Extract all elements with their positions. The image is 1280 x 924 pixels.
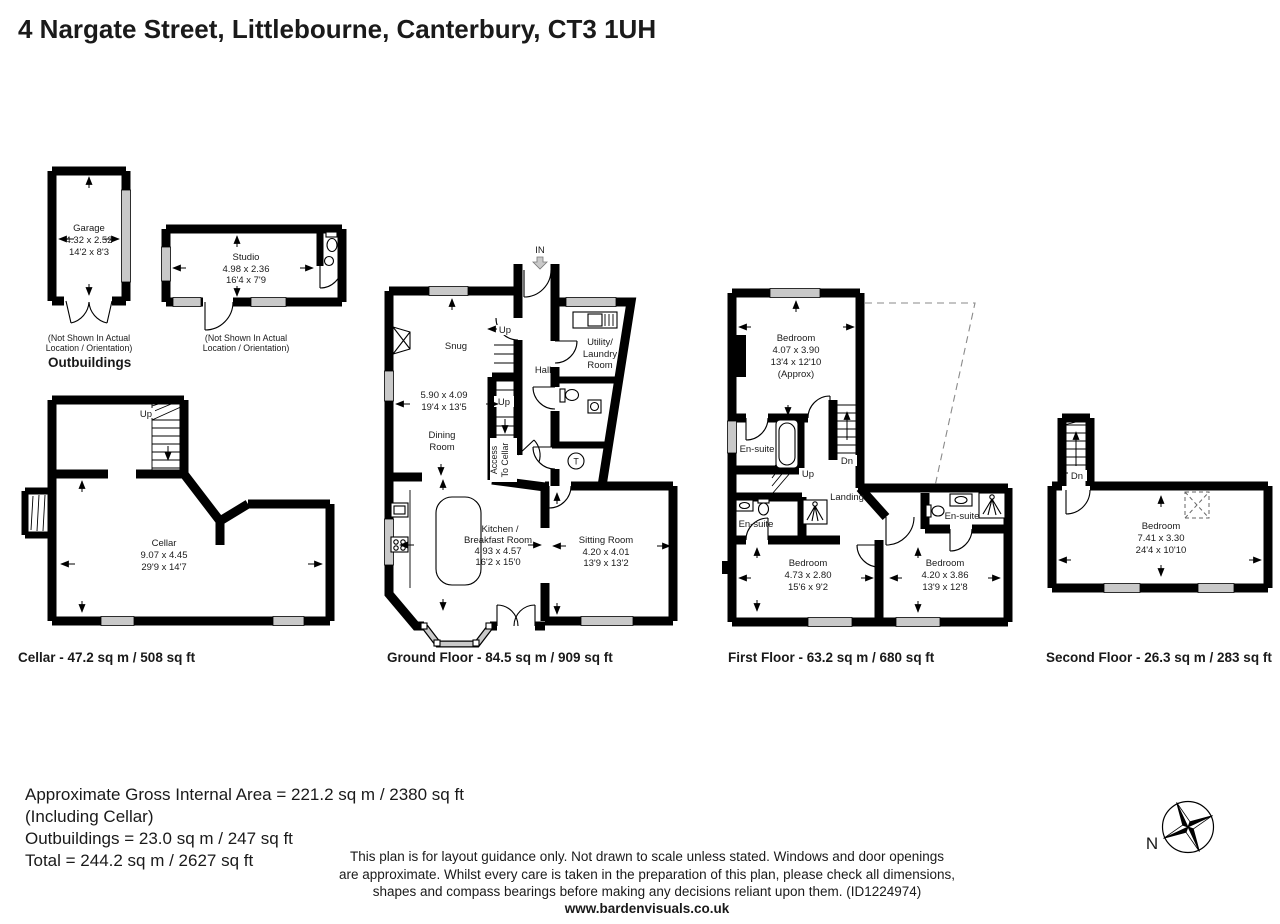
dn-label: Dn bbox=[1071, 471, 1083, 482]
second-floor-label: Second Floor - 26.3 sq m / 283 sq ft bbox=[1046, 650, 1272, 665]
svg-text:Breakfast Room: Breakfast Room bbox=[464, 535, 532, 546]
room-name: Landing bbox=[830, 492, 864, 503]
room-name: Bedroom bbox=[926, 558, 965, 569]
door-arc bbox=[1066, 490, 1090, 514]
area-line: Outbuildings = 23.0 sq m / 247 sq ft bbox=[25, 829, 293, 848]
up-label: Up bbox=[140, 409, 152, 420]
room-dim-m: 4.32 x 2.52 bbox=[65, 235, 112, 246]
area-line: Total = 244.2 sq m / 2627 sq ft bbox=[25, 851, 253, 870]
room-dim-ft: 13'4 x 12'10 bbox=[771, 357, 822, 368]
room-dim-ft: 14'2 x 8'3 bbox=[69, 247, 109, 258]
outbuilding-studio-plan: Studio 4.98 x 2.36 16'4 x 7'9 (Not Shown… bbox=[162, 229, 343, 353]
window bbox=[273, 617, 304, 626]
room-dim-m: 4.20 x 3.86 bbox=[921, 570, 968, 581]
room-dim-m: 4.73 x 2.80 bbox=[784, 570, 831, 581]
bay-window bbox=[421, 623, 492, 646]
room-dim-ft: 15'6 x 9'2 bbox=[788, 582, 828, 593]
room-dim-m: 9.07 x 4.45 bbox=[140, 550, 187, 561]
note: Location / Orientation) bbox=[46, 343, 133, 353]
first-floor-plan: Dn Up bbox=[722, 289, 1008, 627]
window bbox=[429, 287, 468, 296]
disclaimer-line: This plan is for layout guidance only. N… bbox=[350, 849, 944, 864]
room-name: Bedroom bbox=[789, 558, 828, 569]
dimension-arrows bbox=[396, 299, 670, 614]
compass-rose-icon: N bbox=[1146, 791, 1224, 863]
entrance-in-label: IN bbox=[535, 245, 545, 256]
room-dim-m: 5.90 x 4.09 bbox=[420, 390, 467, 401]
up-label: Up bbox=[499, 325, 511, 336]
room-dim-ft: 29'9 x 14'7 bbox=[141, 562, 186, 573]
disclaimer-line: are approximate. Whilst every care is ta… bbox=[339, 867, 955, 882]
toilet-icon bbox=[932, 506, 944, 516]
window bbox=[896, 618, 940, 627]
ground-floor-label: Ground Floor - 84.5 sq m / 909 sq ft bbox=[387, 650, 613, 665]
ground-floor-plan: IN Up Up Access To Ce bbox=[385, 245, 674, 646]
chimney-breast bbox=[736, 335, 746, 377]
outbuildings-heading: Outbuildings bbox=[48, 355, 131, 370]
toilet-icon bbox=[759, 503, 769, 515]
svg-text:T: T bbox=[573, 457, 579, 467]
fireplace-icon bbox=[393, 327, 410, 354]
room-name: Sitting Room bbox=[579, 535, 633, 546]
floor-plan-svg: 4 Nargate Street, Littlebourne, Canterbu… bbox=[0, 0, 1280, 924]
toilet-icon bbox=[327, 239, 337, 252]
svg-text:Room: Room bbox=[429, 442, 454, 453]
second-floor-plan: Dn Bedroom 7.41 x 3.30 24'4 x 10'10 bbox=[1052, 418, 1268, 593]
shower-icon bbox=[803, 500, 827, 524]
void-outline bbox=[865, 303, 975, 486]
room-dim-ft: 16'4 x 7'9 bbox=[226, 275, 266, 286]
room-dim-ft: 24'4 x 10'10 bbox=[1136, 545, 1187, 556]
toilet-icon bbox=[566, 390, 579, 401]
room-name: Hall bbox=[535, 365, 551, 376]
svg-text:To Cellar: To Cellar bbox=[500, 443, 510, 478]
window bbox=[808, 618, 852, 627]
compass-north-label: N bbox=[1146, 834, 1158, 853]
basin-icon bbox=[736, 500, 753, 511]
up-label: Up bbox=[802, 469, 814, 480]
room-dim-m: 4.98 x 2.36 bbox=[222, 264, 269, 275]
window bbox=[385, 371, 394, 401]
room-dim-m: 4.93 x 4.57 bbox=[474, 546, 521, 557]
page-title: 4 Nargate Street, Littlebourne, Canterbu… bbox=[18, 14, 656, 44]
room-name: Cellar bbox=[152, 538, 177, 549]
window bbox=[728, 421, 737, 453]
note: Location / Orientation) bbox=[203, 343, 290, 353]
basin-icon bbox=[325, 257, 334, 266]
window bbox=[581, 617, 633, 626]
svg-text:Laundry: Laundry bbox=[583, 349, 618, 360]
room-name: Utility/ bbox=[587, 337, 613, 348]
disclaimer-line: shapes and compass bearings before makin… bbox=[373, 884, 922, 899]
note: (Not Shown In Actual bbox=[205, 333, 287, 343]
room-dim-m: 4.07 x 3.90 bbox=[772, 345, 819, 356]
area-line: Approximate Gross Internal Area = 221.2 … bbox=[25, 785, 464, 804]
window bbox=[173, 298, 201, 307]
cellar-plan: Up Cellar 9.07 x 4.45 29'9 x 14'7 bbox=[25, 400, 330, 626]
basin-icon bbox=[950, 494, 972, 506]
outbuilding-garage-plan: Garage 4.32 x 2.52 14'2 x 8'3 (Not Shown… bbox=[46, 171, 133, 353]
dn-label: Dn bbox=[841, 456, 853, 467]
room-name: Garage bbox=[73, 223, 105, 234]
room-name: Snug bbox=[445, 341, 467, 352]
up-label: Up bbox=[498, 397, 510, 408]
access-to-cellar-label: Access To Cellar bbox=[489, 438, 517, 482]
disclaimer: This plan is for layout guidance only. N… bbox=[339, 849, 955, 916]
cellar-floor-label: Cellar - 47.2 sq m / 508 sq ft bbox=[18, 650, 196, 665]
room-name: En-suite bbox=[945, 511, 980, 522]
website-link: www.bardenvisuals.co.uk bbox=[564, 901, 730, 916]
svg-text:Room: Room bbox=[587, 360, 612, 371]
svg-text:Access: Access bbox=[489, 445, 499, 474]
floorplan-page: 4 Nargate Street, Littlebourne, Canterbu… bbox=[0, 0, 1280, 924]
room-dim-ft: 16'2 x 15'0 bbox=[475, 557, 520, 568]
room-name: Bedroom bbox=[777, 333, 816, 344]
room-dim-ft: 13'9 x 12'8 bbox=[922, 582, 967, 593]
room-dim-m: 7.41 x 3.30 bbox=[1137, 533, 1184, 544]
ensuite1-fixtures bbox=[776, 420, 798, 468]
room-name: Dining bbox=[429, 430, 456, 441]
window bbox=[101, 617, 134, 626]
first-floor-label: First Floor - 63.2 sq m / 680 sq ft bbox=[728, 650, 935, 665]
room-dim-ft: 19'4 x 13'5 bbox=[421, 402, 466, 413]
svg-text:(Approx): (Approx) bbox=[778, 369, 814, 380]
wc-fixtures bbox=[560, 389, 601, 413]
area-line: (Including Cellar) bbox=[25, 807, 154, 826]
shower-icon bbox=[979, 493, 1005, 518]
rooflight-icon bbox=[1185, 492, 1209, 518]
utility-fixtures bbox=[573, 312, 617, 328]
light-well-ladder bbox=[25, 495, 50, 531]
window bbox=[1104, 584, 1140, 593]
room-name: Kitchen / bbox=[482, 524, 519, 535]
room-dim-m: 4.20 x 4.01 bbox=[582, 547, 629, 558]
window bbox=[1198, 584, 1234, 593]
entrance-arrow-icon bbox=[533, 257, 547, 269]
window bbox=[251, 298, 286, 307]
window bbox=[162, 247, 171, 281]
window bbox=[122, 190, 131, 282]
window bbox=[566, 298, 616, 307]
note: (Not Shown In Actual bbox=[48, 333, 130, 343]
window bbox=[770, 289, 820, 298]
room-name: En-suite bbox=[739, 519, 774, 530]
room-dim-ft: 13'9 x 13'2 bbox=[583, 558, 628, 569]
room-name: Studio bbox=[233, 252, 260, 263]
garage-double-door bbox=[66, 301, 112, 323]
room-name: En-suite bbox=[740, 444, 775, 455]
room-name: Bedroom bbox=[1142, 521, 1181, 532]
wall-nub bbox=[722, 561, 728, 574]
wc-fixtures bbox=[325, 232, 338, 266]
